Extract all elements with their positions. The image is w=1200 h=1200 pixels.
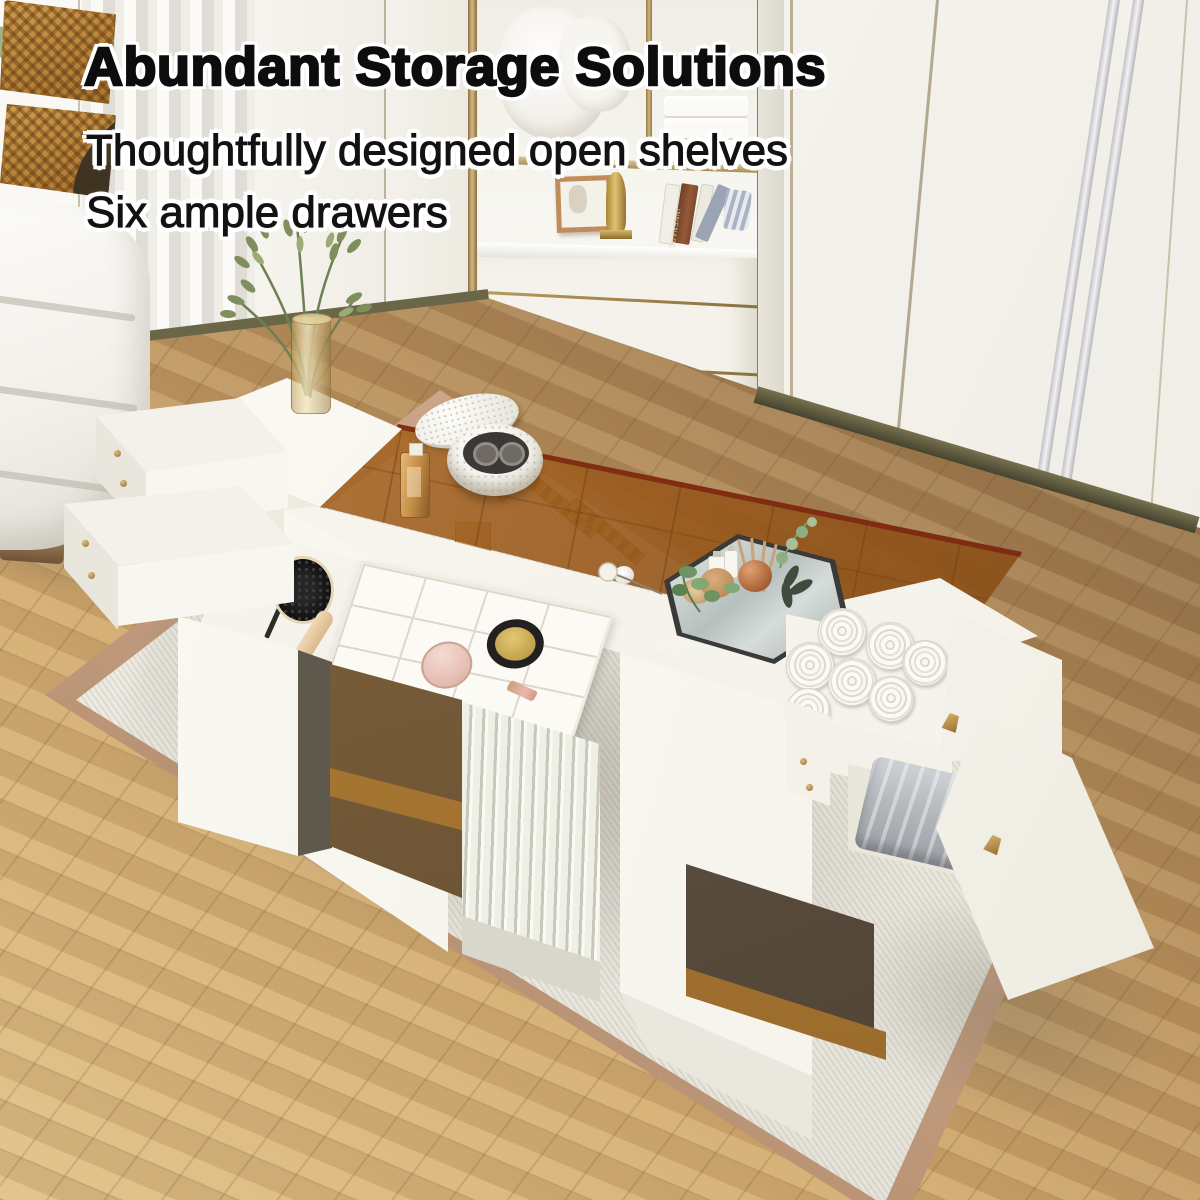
headline: Abundant Storage Solutions <box>84 36 826 98</box>
glass-vase <box>291 316 331 414</box>
plant-branches <box>0 0 1200 1200</box>
cotton-stem <box>599 563 662 594</box>
eucalyptus-sprig <box>776 517 817 568</box>
green-plant-cluster <box>672 562 740 612</box>
subheadline-line2: Six ample drawers <box>86 188 448 238</box>
subheadline-line1: Thoughtfully designed open shelves <box>86 126 788 176</box>
product-photo-scene: INNENARCH <box>0 0 1200 1200</box>
